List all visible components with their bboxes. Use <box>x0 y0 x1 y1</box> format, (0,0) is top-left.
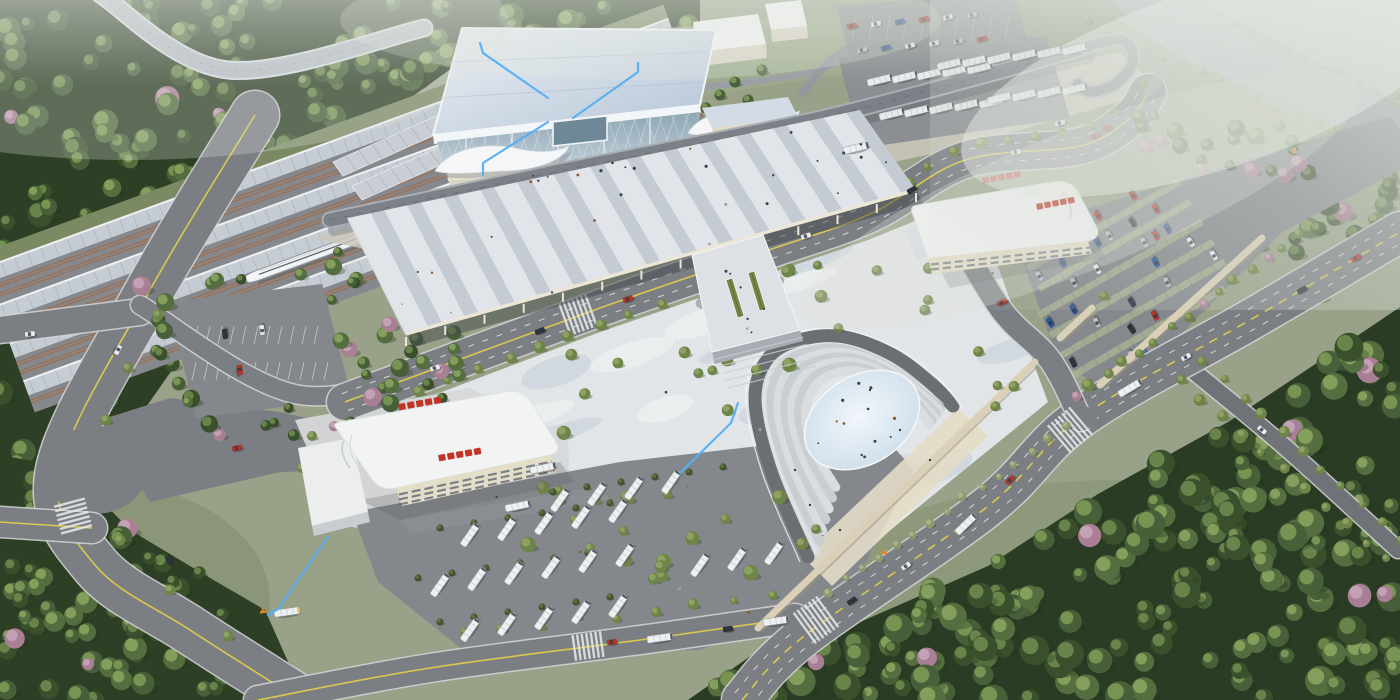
aerial-rendering: High-speed railway station complex — aer… <box>0 0 1400 700</box>
scene-canvas: High-speed railway station complex — aer… <box>0 0 1400 700</box>
